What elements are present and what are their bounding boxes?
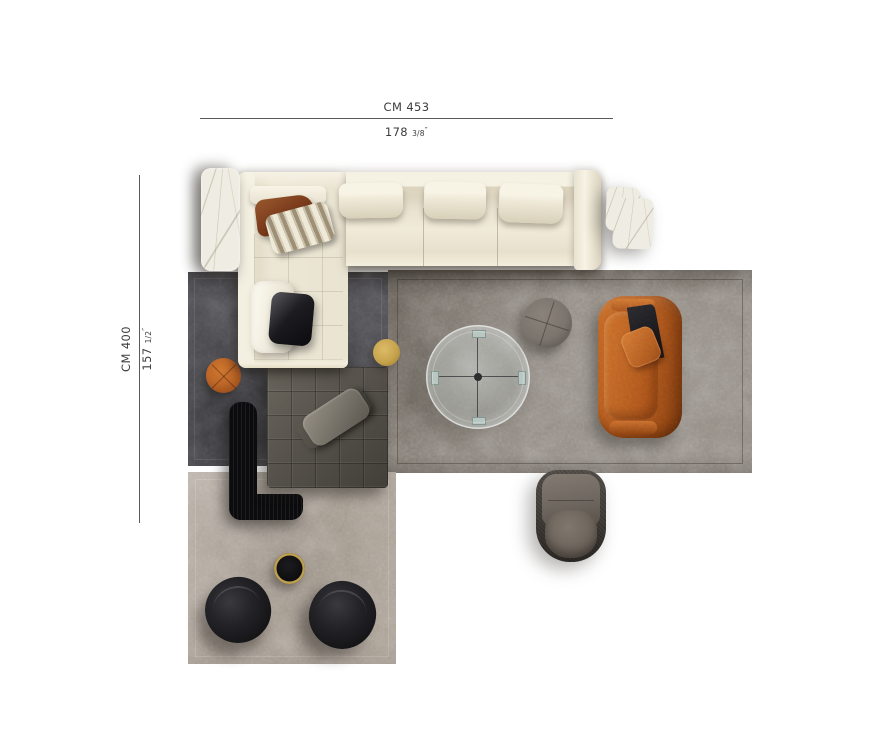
gray-armchair bbox=[536, 470, 606, 562]
glass-table-hub bbox=[474, 373, 482, 381]
marble-side-table-top bbox=[612, 197, 654, 249]
width-dimension-line bbox=[200, 118, 613, 119]
depth-dimension-inch-label: 157 1/2″ bbox=[140, 175, 154, 523]
chaise-front-edge bbox=[238, 358, 348, 368]
seat-cushion-seam bbox=[497, 208, 498, 266]
marble-console-table bbox=[201, 168, 240, 271]
seat-cushion-seam bbox=[423, 208, 424, 266]
depth-inch-fraction: 1/2 bbox=[144, 331, 153, 344]
orange-sofa-armrest bbox=[609, 421, 657, 434]
glass-table-foot bbox=[472, 330, 486, 338]
depth-dimension-cm-label: CM 400 bbox=[119, 175, 133, 523]
cream-back-pillow bbox=[339, 182, 404, 218]
width-inch-fraction: 3/8 bbox=[412, 129, 425, 138]
width-inch-value: 178 bbox=[385, 125, 408, 139]
width-inch-unit: ″ bbox=[425, 126, 428, 135]
sectional-right-armrest bbox=[574, 170, 601, 270]
orange-loveseat-sofa bbox=[598, 296, 682, 438]
cream-back-pillow bbox=[498, 183, 563, 224]
black-pillow bbox=[268, 291, 315, 347]
gold-coin-side-table bbox=[373, 339, 400, 366]
glass-table-frame-bar bbox=[436, 376, 520, 377]
black-round-side-table-gold-rim bbox=[274, 553, 305, 584]
width-dimension-inch-label: 178 3/8″ bbox=[200, 125, 613, 139]
depth-inch-value: 157 bbox=[140, 347, 154, 370]
glass-table-frame-bar bbox=[477, 335, 478, 419]
depth-inch-unit: ″ bbox=[141, 327, 150, 330]
gray-round-pouf bbox=[522, 298, 572, 348]
cream-back-pillow bbox=[424, 181, 487, 219]
glass-table-foot bbox=[518, 371, 526, 385]
bench-horizontal-part bbox=[229, 494, 303, 520]
glass-table-foot bbox=[431, 371, 439, 385]
orange-round-pouf bbox=[206, 358, 241, 393]
round-glass-coffee-table bbox=[426, 325, 530, 429]
floorplan-canvas: CM 453 178 3/8″ CM 400 157 1/2″ bbox=[0, 0, 880, 750]
width-dimension-cm-label: CM 453 bbox=[200, 100, 613, 114]
armchair-seat-cushion bbox=[545, 510, 597, 558]
marble-side-table bbox=[602, 184, 656, 250]
glass-table-foot bbox=[472, 417, 486, 425]
